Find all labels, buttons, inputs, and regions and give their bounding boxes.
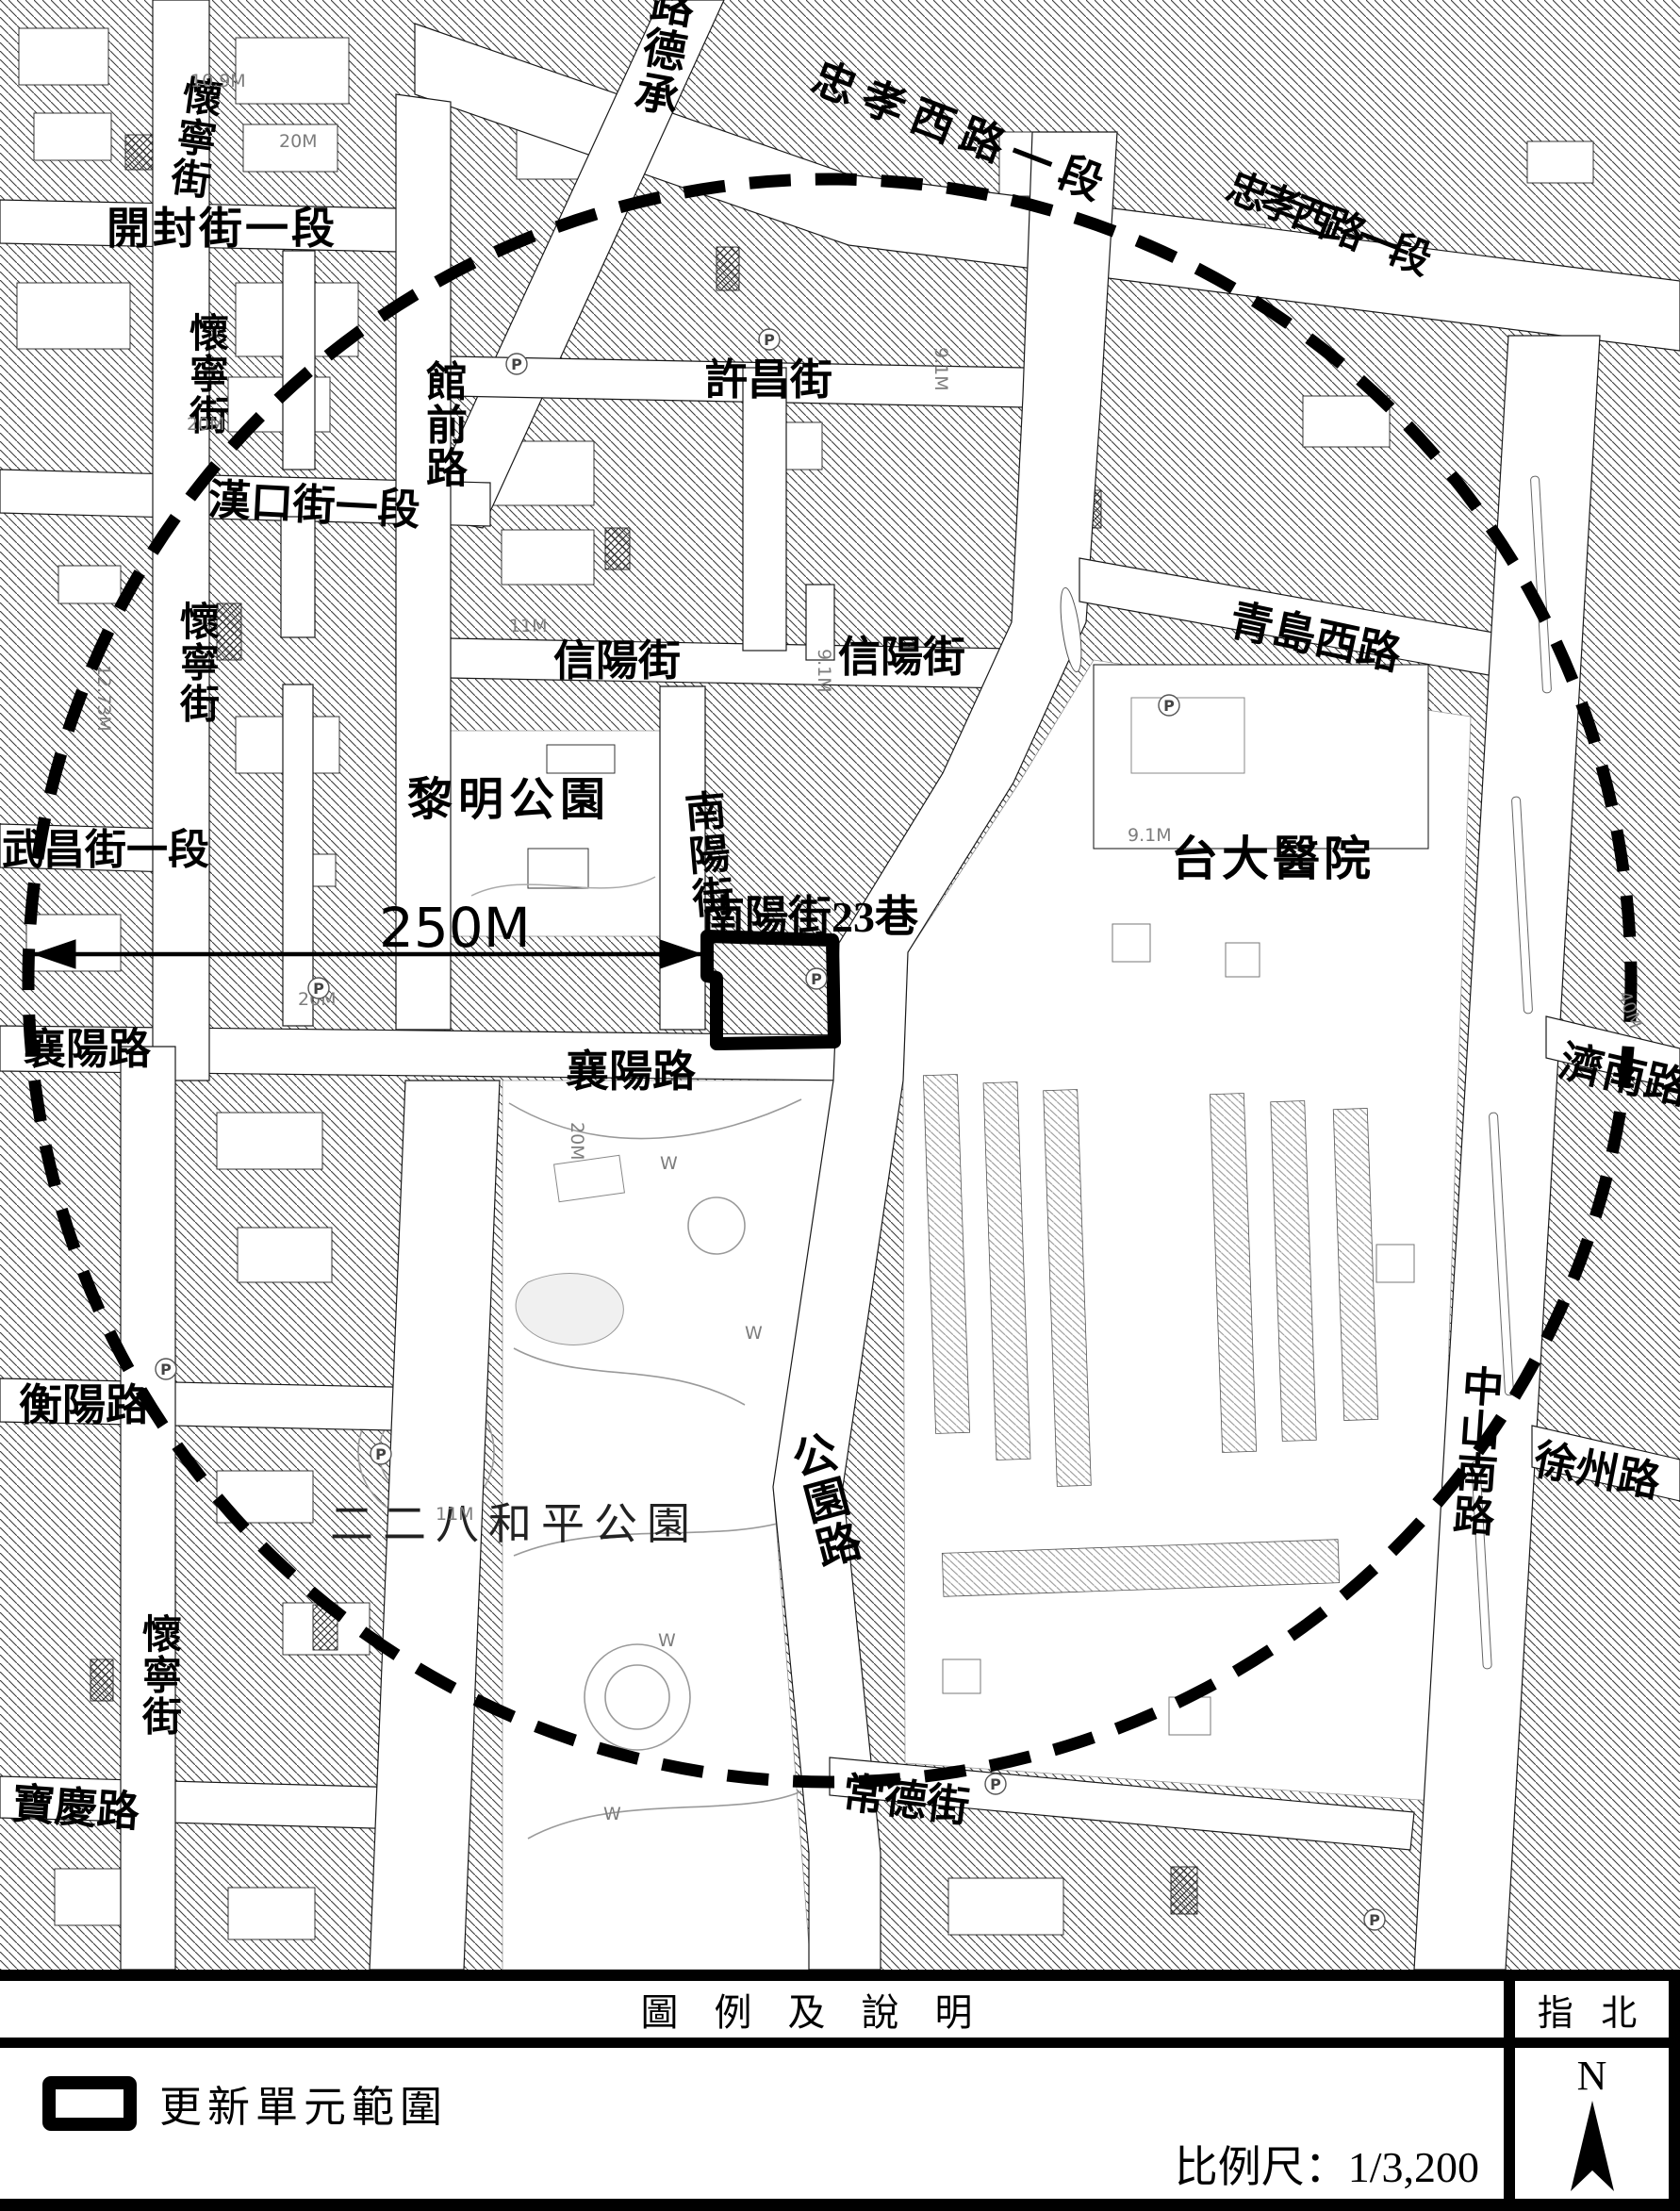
dimension-text: 11M [509,616,548,636]
dimension-text: 10.9M [190,71,246,91]
map-label: 寶慶路 [10,1780,141,1836]
map-label: 信陽街 [838,634,965,681]
north-arrow-cell: N [1515,2048,1680,2199]
update-unit-symbol [42,2076,137,2131]
legend-border-top [0,1970,1680,1981]
dimension-text: 20M [279,131,318,152]
map-label: 衡陽路 [19,1381,150,1429]
legend-vertical-divider-2 [1504,2048,1515,2199]
dimension-text: 20M [567,1122,587,1161]
dimension-text: 9.1M [814,649,834,693]
parking-icon-letter: P [160,1361,172,1378]
dimension-text: W [745,1323,763,1344]
parking-icon-letter: P [375,1445,387,1463]
dimension-text: W [660,1153,678,1174]
map-label: 襄陽路 [24,1026,152,1073]
city-map-svg: 路德承忠孝西路一段忠孝西路一段開封街一段懷寧街懷寧街懷寧街懷寧街館前路漢口街一段… [0,0,1680,1970]
legend-border-mid [0,2038,1680,2048]
lane-small-2 [281,517,315,637]
parking-icon-letter: P [764,331,775,349]
dimension-text: W [603,1804,621,1824]
parking-icon-letter: P [990,1775,1001,1793]
dimension-text: 11M [436,1504,474,1525]
map-label: 250M [379,896,531,960]
map-scale-text: 比例尺：1/3,200 [1175,2133,1479,2195]
dimension-text: W [658,1630,676,1651]
parking-icon-letter: P [1369,1911,1380,1929]
map-label: 信陽街 [553,637,681,685]
legend-title: 圖 例 及 說 明 [641,1982,986,2037]
ntu-hospital-grounds [903,660,1471,1801]
legend-title-cell: 圖 例 及 說 明 [0,1981,1504,2038]
map-label: 襄陽路 [566,1048,697,1096]
map-label: 南陽街23巷 [701,893,919,941]
map-label: 懷寧街 [179,601,220,727]
parking-icon-letter: P [511,355,522,373]
legend-vertical-divider [1504,1981,1515,2038]
map-label: 懷寧街 [141,1613,182,1740]
parking-icon-letter: P [313,980,324,998]
renewal-location-map-page: 路德承忠孝西路一段忠孝西路一段開封街一段懷寧街懷寧街懷寧街懷寧街館前路漢口街一段… [0,0,1680,2211]
update-unit-legend-row: 更新單元範圍 [42,2072,448,2134]
map-label: 開封街一段 [107,205,338,253]
street-guanqian-rd [396,94,451,1030]
map-label: 二二八和平公園 [330,1500,700,1548]
map-area: 路德承忠孝西路一段忠孝西路一段開封街一段懷寧街懷寧街懷寧街懷寧街館前路漢口街一段… [0,0,1680,1970]
map-label: 許昌街 [705,356,832,404]
parking-icon-letter: P [811,970,822,988]
lane-small-3 [283,685,313,1026]
dimension-text: 9.1M [931,347,951,391]
dimension-text: 12.73M [93,665,114,732]
update-unit-label: 更新單元範圍 [159,2072,448,2134]
dimension-text: 20M [187,414,225,435]
north-arrow-icon [1570,2101,1615,2193]
lane-small-1 [283,251,315,470]
map-label: 館前路 [426,359,469,492]
legend-border-bottom [0,2199,1680,2211]
north-title-cell: 指 北 [1515,1981,1680,2038]
lane-9m-a [743,368,786,651]
north-indicator-title: 指 北 [1538,1984,1647,2036]
map-label: 黎明公園 [407,775,611,825]
dimension-text: 9.1M [1128,825,1172,846]
map-label: 台大醫院 [1171,833,1375,885]
parking-icon-letter: P [1163,697,1175,715]
legend-panel: 圖 例 及 說 明 指 北 更新單元範圍 比例尺：1/3,200 N [0,1970,1680,2211]
legend-body-cell: 更新單元範圍 比例尺：1/3,200 [0,2048,1504,2199]
map-label: 武昌街一段 [2,827,209,873]
north-letter: N [1577,2055,1607,2097]
